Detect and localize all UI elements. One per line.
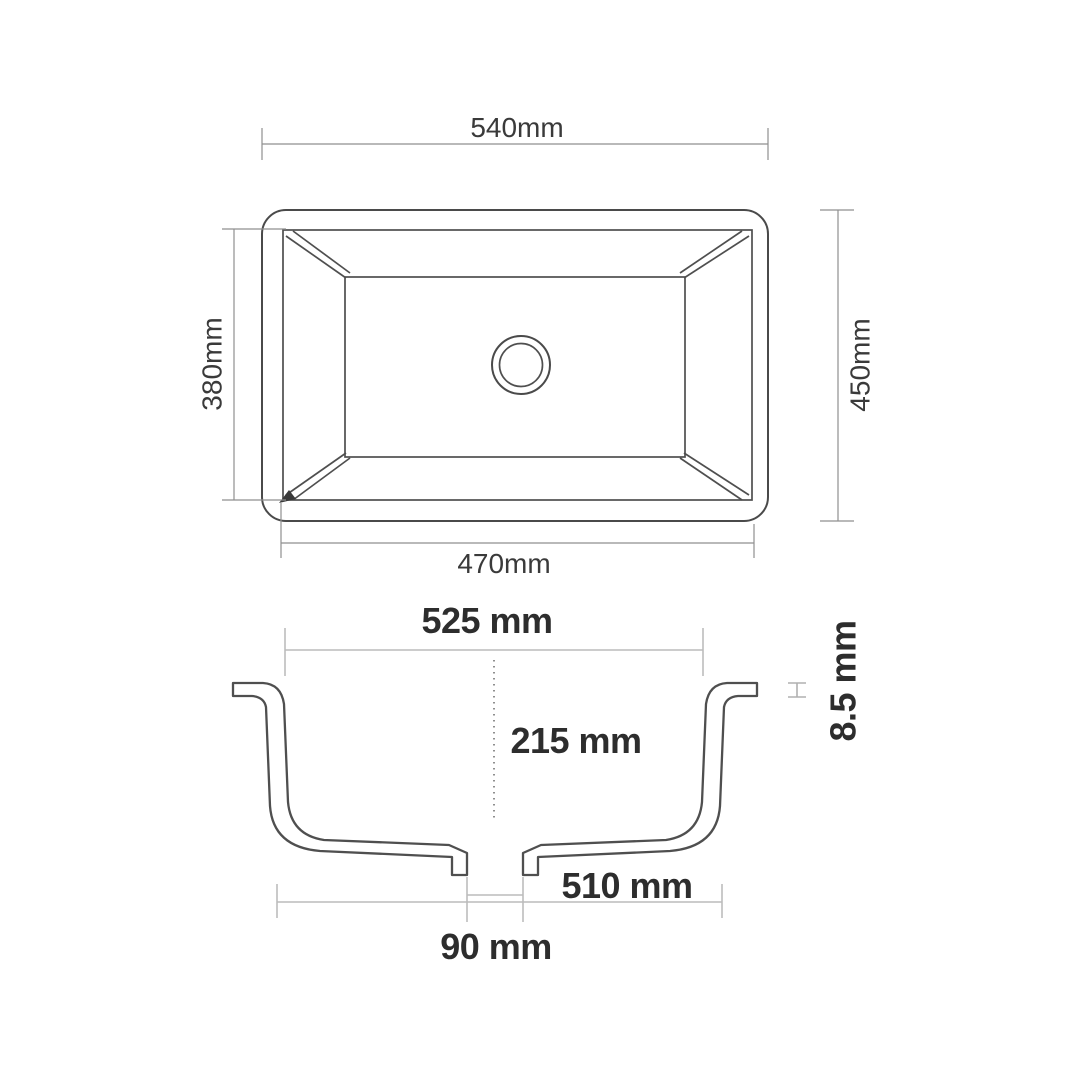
drain-outline xyxy=(492,336,550,394)
dim-rim-opening-width: 525 mm xyxy=(285,600,703,676)
dim-base-width: 510 mm xyxy=(277,865,722,918)
dim-base-width-label: 510 mm xyxy=(561,865,692,906)
dim-inner-width-label: 470mm xyxy=(457,548,550,579)
dim-bowl-depth-label: 215 mm xyxy=(510,720,641,761)
section-right-wall xyxy=(523,683,757,875)
corner-arrow-mark xyxy=(279,490,296,503)
drawing-canvas: 540mm 450mm 380mm 470mm xyxy=(0,0,1080,1080)
outer-rim-outline xyxy=(262,210,768,521)
rim-thickness-mark xyxy=(788,683,806,697)
dim-drain-opening: 90 mm xyxy=(440,877,552,967)
sink-technical-drawing: 540mm 450mm 380mm 470mm xyxy=(0,0,1080,1080)
dim-rim-thickness: 8.5 mm xyxy=(788,620,864,741)
dim-outer-height-label: 450mm xyxy=(845,318,876,411)
section-left-wall xyxy=(233,683,467,875)
dim-inner-width: 470mm xyxy=(281,503,754,579)
dim-drain-opening-label: 90 mm xyxy=(440,926,552,967)
cross-section-view: 525 mm 215 mm 8.5 mm 510 mm 90 mm xyxy=(233,600,864,967)
dim-outer-width-label: 540mm xyxy=(470,112,563,143)
basin-bottom-outline xyxy=(345,277,685,457)
dim-rim-thickness-label: 8.5 mm xyxy=(823,620,864,741)
corner-slope-edges xyxy=(279,231,749,503)
plan-view: 540mm 450mm 380mm 470mm xyxy=(197,112,876,579)
dim-outer-width: 540mm xyxy=(262,112,768,160)
dim-inner-height-label: 380mm xyxy=(197,317,228,410)
dim-outer-height: 450mm xyxy=(820,210,876,521)
dim-inner-height: 380mm xyxy=(197,229,287,500)
dim-rim-opening-width-label: 525 mm xyxy=(421,600,552,641)
